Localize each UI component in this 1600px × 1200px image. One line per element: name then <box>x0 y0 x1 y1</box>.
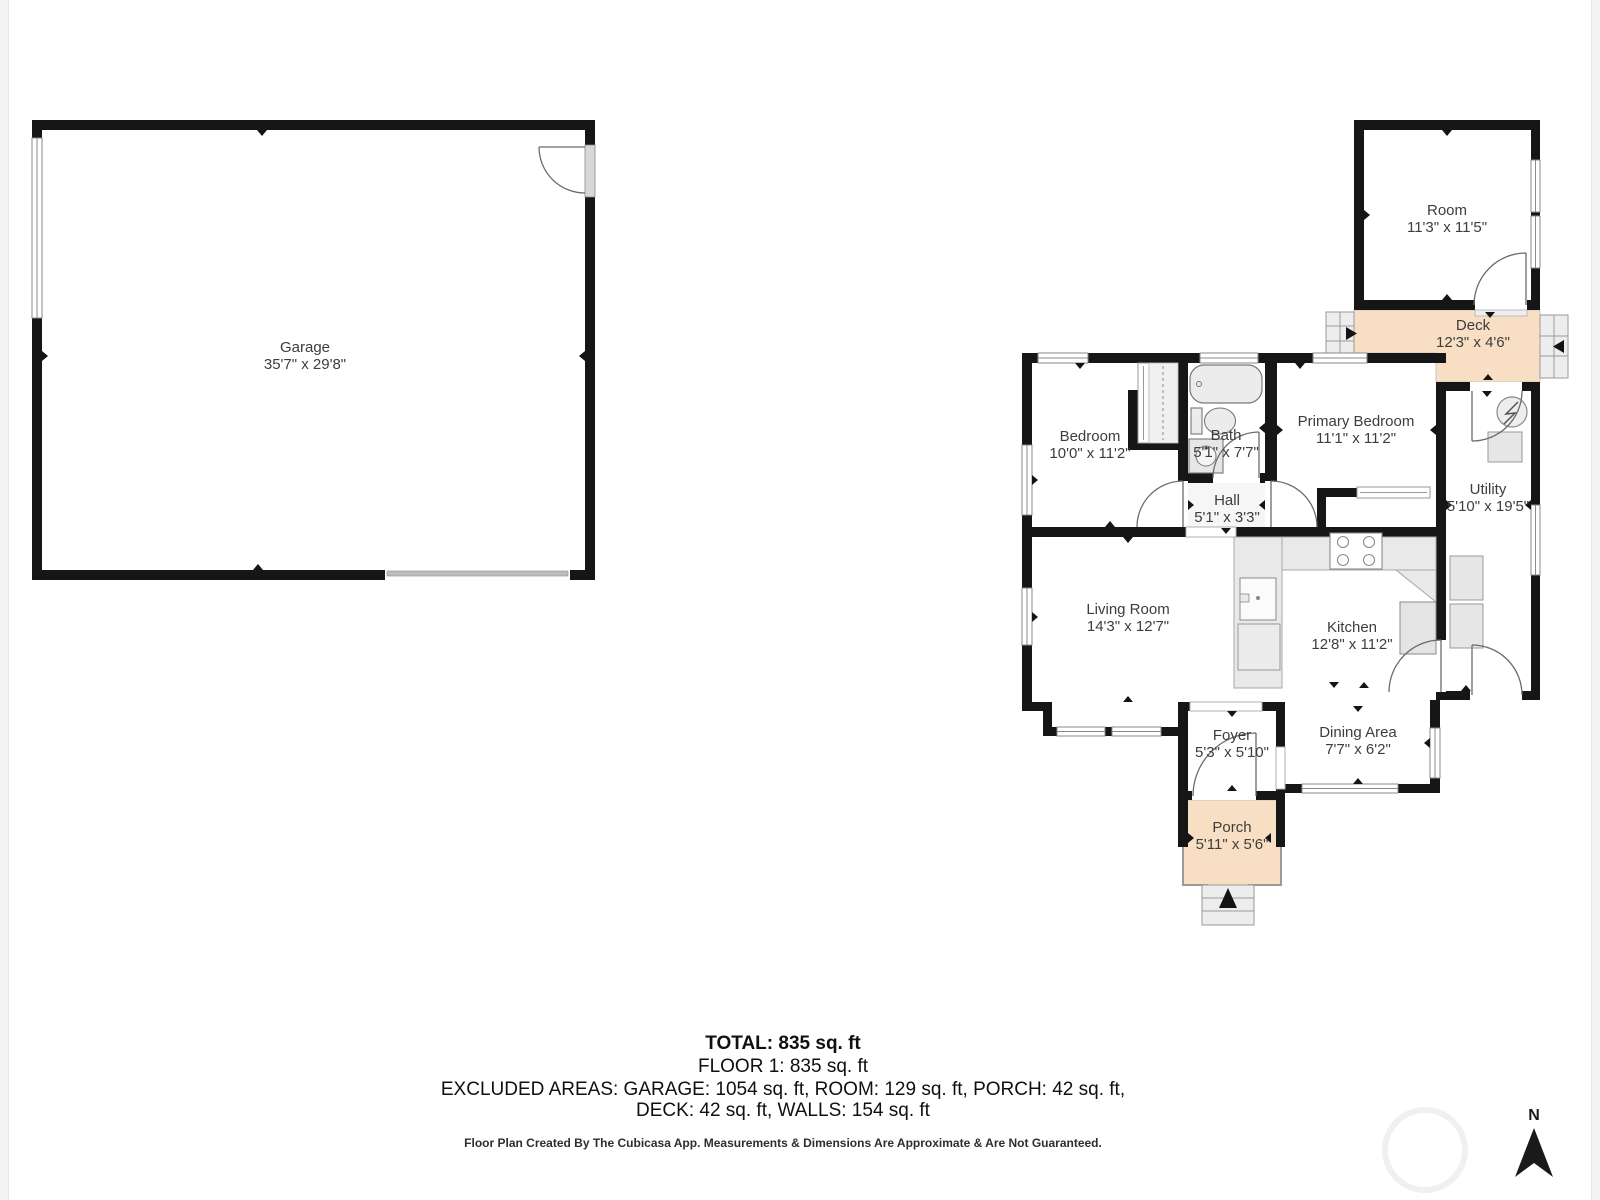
dimension-ticks <box>42 130 1531 843</box>
room-label-hall: Hall5'1" x 3'3" <box>1194 492 1260 526</box>
summary-excluded-line1: EXCLUDED AREAS: GARAGE: 1054 sq. ft, ROO… <box>441 1079 1125 1101</box>
north-arrow-icon <box>1515 1128 1553 1177</box>
room-label-bath: Bath5'1" x 7'7" <box>1193 427 1259 461</box>
room-label-dining-area: Dining Area7'7" x 6'2" <box>1319 724 1397 758</box>
floor-plan-page: Garage35'7" x 29'8" Room11'3" x 11'5" De… <box>0 0 1600 1200</box>
room-label-kitchen: Kitchen12'8" x 11'2" <box>1311 619 1392 653</box>
floor-plan-svg <box>0 0 1600 1200</box>
dryer <box>1450 604 1483 648</box>
bathtub <box>1190 365 1262 403</box>
kitchen-sink <box>1240 578 1276 620</box>
summary-floor1: FLOOR 1: 835 sq. ft <box>698 1056 868 1078</box>
room-label-room: Room11'3" x 11'5" <box>1407 202 1487 236</box>
watermark-circle <box>1385 1110 1465 1190</box>
room-label-deck: Deck12'3" x 4'6" <box>1436 317 1510 351</box>
room-label-primary-bedroom: Primary Bedroom11'1" x 11'2" <box>1298 413 1415 447</box>
room-door-sill <box>1475 310 1527 316</box>
stove <box>1330 533 1382 569</box>
primary-closet <box>1357 487 1430 498</box>
washer <box>1450 556 1483 600</box>
water-heater-icon <box>1497 397 1527 427</box>
dishwasher <box>1238 624 1280 670</box>
garage-entry-door <box>539 145 595 197</box>
north-label: N <box>1528 1107 1540 1125</box>
room-label-porch: Porch5'11" x 5'6" <box>1196 819 1269 853</box>
bedroom-closet <box>1138 363 1178 443</box>
room-label-utility: Utility5'10" x 19'5" <box>1447 481 1529 515</box>
room-label-living-room: Living Room14'3" x 12'7" <box>1086 601 1169 635</box>
refrigerator <box>1400 602 1436 654</box>
room-label-bedroom: Bedroom10'0" x 11'2" <box>1049 428 1130 462</box>
summary-excluded-line2: DECK: 42 sq. ft, WALLS: 154 sq. ft <box>636 1100 930 1122</box>
garage-window <box>32 138 42 318</box>
footer-disclaimer: Floor Plan Created By The Cubicasa App. … <box>464 1136 1102 1150</box>
summary-total: TOTAL: 835 sq. ft <box>705 1033 861 1055</box>
room-label-foyer: Foyer5'3" x 5'10" <box>1195 727 1269 761</box>
garage-door <box>385 570 570 580</box>
room-label-garage: Garage35'7" x 29'8" <box>264 339 346 373</box>
